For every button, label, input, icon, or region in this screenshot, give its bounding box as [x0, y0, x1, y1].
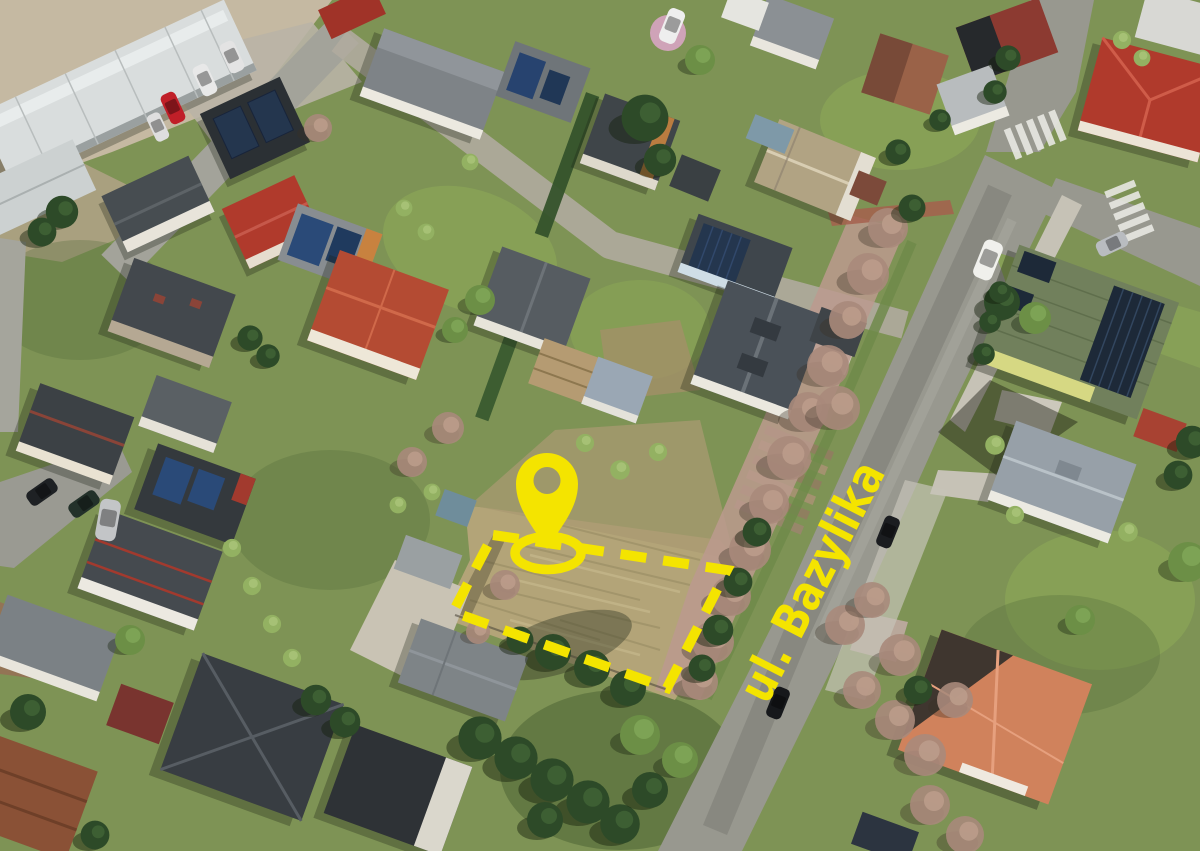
bush [1113, 31, 1131, 49]
bush [283, 649, 301, 667]
bush [424, 484, 441, 501]
bush [223, 539, 241, 557]
bush [243, 577, 261, 595]
bush [1118, 522, 1138, 542]
bush [1006, 506, 1024, 524]
aerial-photo: ul. Bazylika [0, 0, 1200, 851]
bush [1134, 50, 1151, 67]
bush [390, 497, 407, 514]
bush [418, 224, 435, 241]
bush [576, 434, 594, 452]
bush [649, 443, 667, 461]
bush [985, 435, 1005, 455]
bush [462, 154, 479, 171]
bush [263, 615, 281, 633]
bush [610, 460, 630, 480]
bush [396, 200, 413, 217]
